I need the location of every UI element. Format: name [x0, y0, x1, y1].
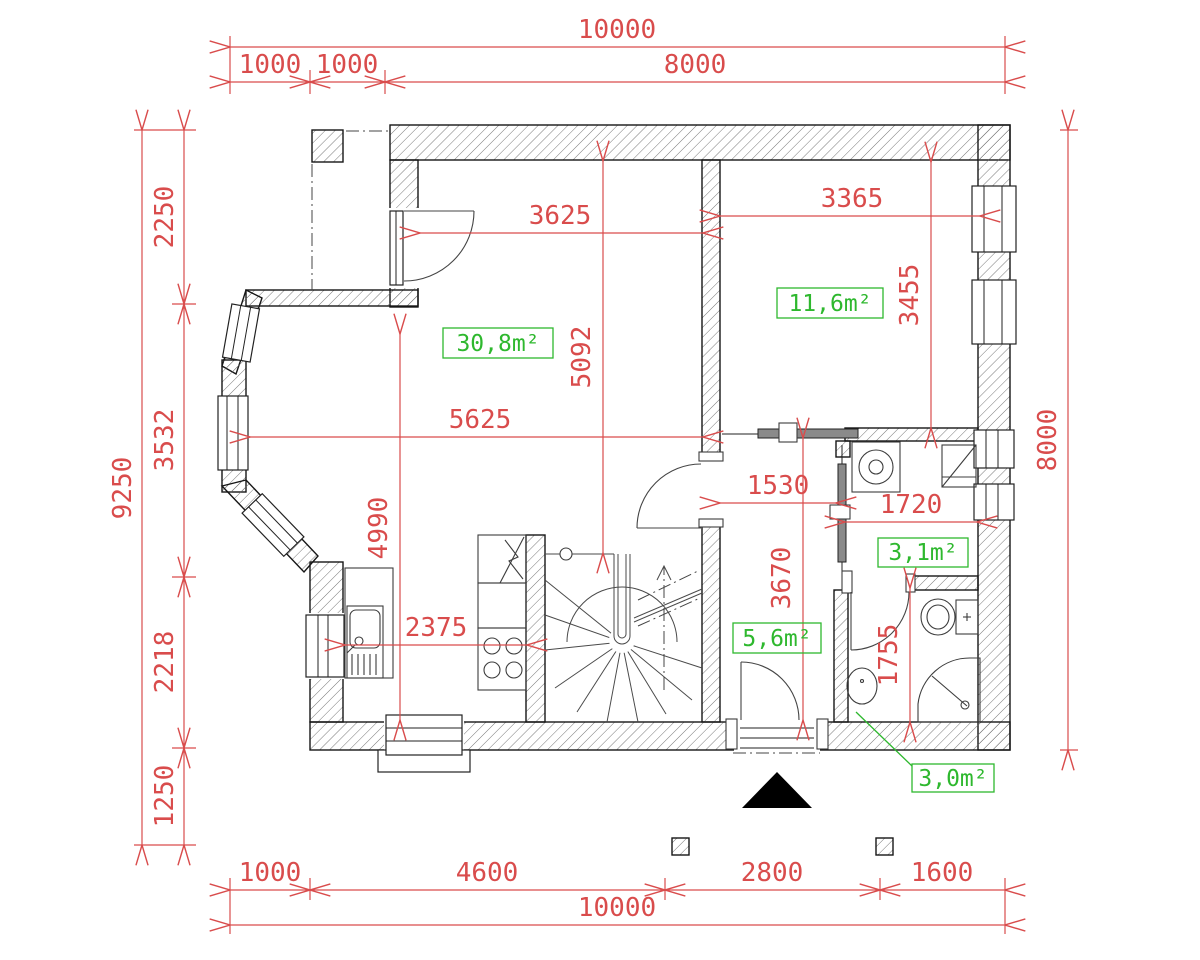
shower-tray — [918, 658, 980, 722]
kitchen-sink — [347, 606, 383, 678]
area-value: 3,0m² — [918, 766, 987, 792]
dim-label: 3365 — [821, 184, 884, 214]
dim-kitchen-height: 4990 — [364, 334, 400, 720]
dim-bottom-seg3: 2800 — [665, 858, 880, 890]
kitchen-cabinet — [478, 583, 526, 628]
dim-bottom-seg4: 1600 — [880, 858, 1005, 890]
dim-left-seg2: 3532 — [150, 304, 184, 577]
dim-label: 1530 — [747, 471, 810, 501]
hall-door-swing — [637, 464, 701, 528]
wash-basin — [847, 668, 877, 704]
dim-label: 2250 — [150, 186, 180, 249]
dim-bottom-seg1: 1000 — [230, 858, 310, 890]
dim-label: 1000 — [239, 50, 302, 80]
dim-left-total: 9250 — [108, 130, 142, 845]
area-label-living: 30,8m² — [443, 328, 553, 358]
wall-living-bedroom — [702, 160, 720, 460]
porch-pillar — [312, 130, 343, 162]
floor-plan-page: 10000 1000 1000 8000 9250 2250 — [0, 0, 1200, 960]
toilet — [921, 599, 978, 635]
porch-post-right — [876, 838, 893, 855]
entrance-jamb-right — [817, 719, 828, 749]
dim-label: 10000 — [578, 15, 656, 45]
bedroom-window-2 — [972, 280, 1016, 344]
dim-bottom-total: 10000 — [230, 893, 1005, 925]
dim-label: 3532 — [150, 409, 180, 472]
stove — [478, 628, 526, 690]
dim-living-top-width: 3625 — [420, 201, 703, 233]
fridge — [478, 535, 526, 583]
dim-top-total: 10000 — [230, 15, 1005, 47]
dim-right-total: 8000 — [1033, 130, 1068, 750]
washing-machine — [852, 442, 900, 492]
dim-label: 3455 — [895, 264, 925, 327]
entrance-door-swing — [741, 662, 799, 720]
dim-label: 2375 — [405, 613, 468, 643]
bay-window-middle — [218, 396, 248, 470]
bath-door-jamb-left — [842, 571, 852, 593]
dim-label: 1000 — [316, 50, 379, 80]
dim-top-seg2: 1000 — [310, 50, 385, 82]
kitchen-left-window — [306, 615, 344, 677]
bedroom-window-1 — [972, 186, 1016, 252]
area-value: 30,8m² — [456, 331, 539, 357]
wall-kitchen-stair — [526, 535, 545, 722]
bay-window-upper — [223, 304, 260, 362]
stair-newel-post — [560, 548, 572, 560]
dim-label: 10000 — [578, 893, 656, 923]
dim-kitchen-width: 2375 — [345, 613, 527, 645]
floor-plan-drawing: 10000 1000 1000 8000 9250 2250 — [0, 0, 1200, 960]
wall-stub-utility — [836, 441, 850, 457]
dim-left-seg4: 1250 — [150, 748, 184, 845]
area-value: 5,6m² — [742, 626, 811, 652]
hall-door-jamb-top — [699, 452, 723, 461]
area-label-hall: 5,6m² — [733, 623, 821, 653]
sliding-door-bracket-v — [830, 505, 850, 519]
bathroom-fixtures — [847, 599, 980, 722]
dim-label: 2800 — [741, 858, 804, 888]
area-value: 11,6m² — [788, 291, 871, 317]
area-label-utility: 3,1m² — [878, 538, 968, 567]
dim-utility-width: 1720 — [845, 490, 977, 522]
dim-left-seg1: 2250 — [150, 130, 184, 304]
bath-window — [974, 484, 1014, 520]
dim-label: 1600 — [911, 858, 974, 888]
wall-stair-hall — [702, 526, 720, 722]
dim-label: 1250 — [150, 765, 180, 828]
wall-hall-bath — [834, 590, 848, 722]
wall-top — [390, 125, 1010, 160]
dim-label: 4990 — [364, 497, 394, 560]
dim-label: 5625 — [449, 405, 512, 435]
dim-label: 8000 — [664, 50, 727, 80]
dim-label: 2218 — [150, 631, 180, 694]
dim-bath-height: 1755 — [874, 588, 910, 722]
dim-living-width: 5625 — [250, 405, 703, 437]
dim-top-seg3: 8000 — [385, 50, 1005, 82]
area-label-bedroom: 11,6m² — [777, 288, 883, 318]
sliding-door-leaf-h — [758, 429, 858, 438]
area-value: 3,1m² — [888, 540, 957, 566]
dim-label: 5092 — [567, 326, 597, 389]
water-heater — [942, 445, 976, 487]
dim-left-seg3: 2218 — [150, 577, 184, 748]
dim-label: 9250 — [108, 457, 138, 520]
wall-utility-top — [845, 428, 978, 441]
utility-fixtures — [852, 442, 976, 492]
sliding-door-bracket-h — [779, 423, 797, 442]
stair-stringer-inner — [618, 554, 626, 638]
dim-top-seg1: 1000 — [230, 50, 310, 82]
entrance-marker-triangle — [742, 772, 812, 808]
dim-label: 3625 — [529, 201, 592, 231]
dim-label: 1720 — [880, 490, 943, 520]
dim-bottom-seg2: 4600 — [310, 858, 665, 890]
dim-label: 3670 — [767, 547, 797, 610]
dim-bedroom-height: 3455 — [895, 162, 931, 428]
bay-wall-top — [246, 290, 418, 306]
entrance-jamb-left — [726, 719, 737, 749]
spiral-staircase — [545, 548, 702, 722]
dim-bedroom-width: 3365 — [720, 184, 980, 216]
kitchen-bottom-window — [378, 715, 470, 772]
dim-label: 8000 — [1033, 409, 1063, 472]
stair-upper-flight — [634, 566, 702, 690]
hall-door-jamb-bottom — [699, 519, 723, 527]
utility-window — [974, 430, 1014, 468]
dim-hall-width: 1530 — [720, 471, 836, 503]
dim-label: 1755 — [874, 624, 904, 687]
porch-post-left — [672, 838, 689, 855]
dim-label: 1000 — [239, 858, 302, 888]
dim-label: 4600 — [456, 858, 519, 888]
